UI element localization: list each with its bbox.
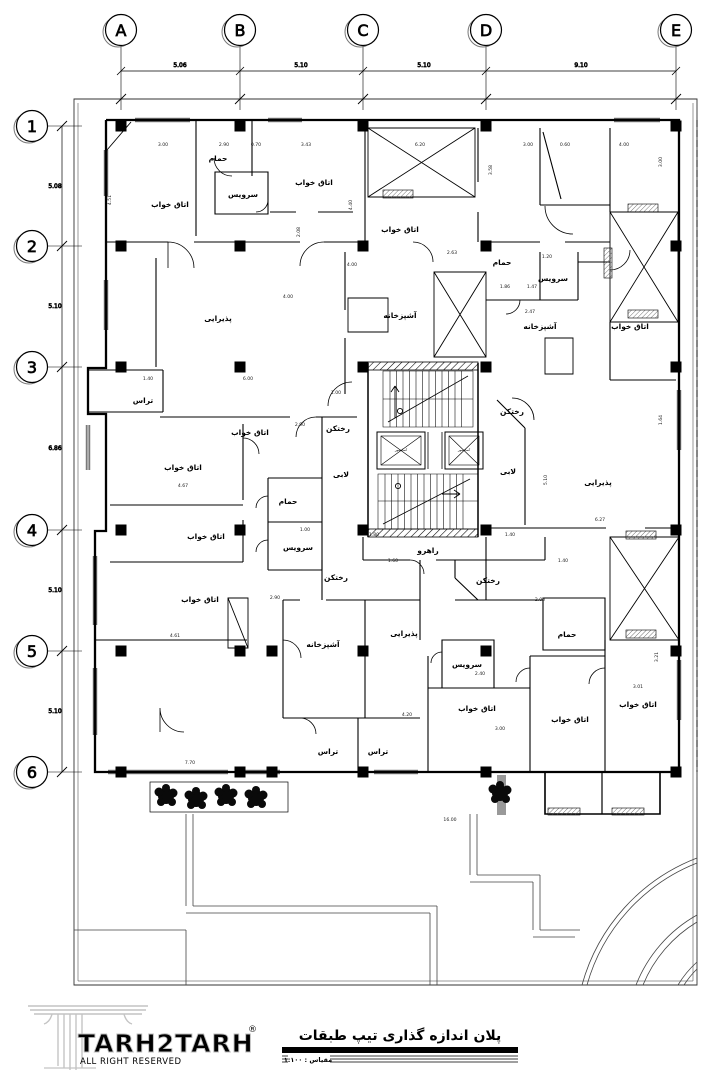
- core-hatched-wall-top: [368, 362, 478, 370]
- room-label: سرویس: [538, 274, 568, 283]
- column: [116, 646, 127, 657]
- room-label: اتاق خواب: [619, 700, 657, 709]
- column: [481, 646, 492, 657]
- grid-dim-label: 5.10: [294, 62, 308, 69]
- title-underline-bar: [282, 1047, 518, 1053]
- tree-icon: [155, 784, 178, 806]
- elevator-label: آسانسور: [394, 448, 408, 452]
- dim-label: 1.64: [658, 415, 664, 425]
- grid-bubble-col-B: B: [222, 15, 256, 48]
- dim-label: 3.00: [495, 726, 505, 732]
- dim-label: 2.90: [219, 142, 229, 148]
- grid-row-label: 1: [27, 117, 37, 136]
- column: [235, 646, 246, 657]
- room-label: رختکن: [500, 407, 524, 416]
- dim-label: 1.80: [369, 532, 379, 538]
- column: [481, 121, 492, 132]
- column: [116, 362, 127, 373]
- room-label: رختکن: [326, 424, 350, 433]
- core-hatched-wall-bottom: [368, 529, 478, 537]
- column: [671, 767, 682, 778]
- dim-label: 4.00: [619, 142, 629, 148]
- grid-row-label: 2: [27, 237, 37, 256]
- column: [235, 241, 246, 252]
- drawing-sheet: ABCDE1234565.065.105.109.105.085.106.865…: [0, 0, 720, 1080]
- room-label: اتاق خواب: [151, 200, 189, 209]
- dim-label: 2.00: [535, 597, 545, 603]
- tree-icon: [245, 786, 268, 808]
- room-label: تراس: [133, 396, 154, 405]
- column: [358, 646, 369, 657]
- grid-bubble-col-C: C: [345, 15, 379, 48]
- column: [358, 121, 369, 132]
- dim-label: 5.10: [543, 475, 549, 485]
- column: [481, 241, 492, 252]
- dim-label: 4.00: [347, 262, 357, 268]
- column: [671, 646, 682, 657]
- dim-label: 2.08: [296, 227, 302, 237]
- column: [116, 525, 127, 536]
- room-label: حمام: [279, 497, 298, 506]
- dim-label: 3.58: [488, 165, 494, 175]
- tree-icon: [489, 781, 512, 803]
- room-label: آشپزخانه: [383, 310, 417, 320]
- column: [481, 525, 492, 536]
- dim-label: 16.00: [443, 817, 456, 823]
- column: [671, 362, 682, 373]
- dim-label: 3.43: [301, 142, 311, 148]
- dim-label: 4.40: [348, 200, 354, 210]
- column: [671, 525, 682, 536]
- grid-dim-label: 5.10: [48, 708, 62, 715]
- room-label: اتاق خواب: [458, 704, 496, 713]
- grid-bubble-col-D: D: [468, 15, 502, 48]
- dim-label: 3.01: [633, 684, 643, 690]
- dim-label: 3.00: [523, 142, 533, 148]
- room-label: سرویس: [452, 660, 482, 669]
- dim-label: 1.60: [388, 558, 398, 564]
- grid-dim-label: 6.86: [48, 445, 62, 452]
- grid-bubble-row-1: 1: [14, 111, 48, 144]
- dim-label: 1.40: [143, 376, 153, 382]
- dim-label: 4.61: [170, 633, 180, 639]
- room-label: تراس: [318, 747, 339, 756]
- grid-dim-label: 5.08: [48, 183, 62, 190]
- elevator-labels: آسانسورآسانسور: [394, 448, 471, 452]
- column: [481, 767, 492, 778]
- grid-col-label: E: [671, 21, 681, 40]
- column: [358, 241, 369, 252]
- column: [481, 362, 492, 373]
- room-label: اتاق خواب: [295, 178, 333, 187]
- dim-label: 2.63: [447, 250, 457, 256]
- grid-row-label: 4: [27, 521, 37, 540]
- grid-dim-label: 5.10: [48, 587, 62, 594]
- grid-row-label: 3: [27, 358, 37, 377]
- grid-bubble-row-4: 4: [14, 515, 48, 548]
- room-label: آشپزخانه: [306, 639, 340, 649]
- grid-dim-label: 5.10: [48, 303, 62, 310]
- grid-col-label: C: [357, 21, 368, 40]
- column: [235, 362, 246, 373]
- dim-label: 2.40: [475, 671, 485, 677]
- title-block: TARH2TARH ® ALL RIGHT RESERVED پلان اندا…: [28, 1006, 518, 1070]
- sheet-title: پلان اندازه گذاری تیپ طبقات: [299, 1027, 502, 1044]
- dim-label: 0.70: [251, 142, 261, 148]
- column: [358, 767, 369, 778]
- column: [235, 767, 246, 778]
- dim-label: 4.20: [402, 712, 412, 718]
- dim-label: 6.27: [595, 517, 605, 523]
- dim-label: 1.86: [500, 284, 510, 290]
- grid-dim-label: 9.10: [574, 62, 588, 69]
- dim-label: 0.60: [560, 142, 570, 148]
- logo-text: TARH2TARH: [78, 1029, 254, 1058]
- room-label: رختکن: [476, 576, 500, 585]
- column: [358, 525, 369, 536]
- column: [358, 362, 369, 373]
- tree-icon: [215, 784, 238, 806]
- dim-label: 3.00: [658, 157, 664, 167]
- dim-label: 4.67: [178, 483, 188, 489]
- grid-bubble-col-E: E: [658, 15, 692, 48]
- dim-label: 6.00: [243, 376, 253, 382]
- dim-label: 7.70: [185, 760, 195, 766]
- room-label: حمام: [558, 630, 577, 639]
- driveway-arcs: [582, 858, 697, 985]
- grid-col-label: A: [116, 21, 127, 40]
- room-label: لابی: [500, 467, 516, 476]
- room-label: حمام: [209, 154, 228, 163]
- stair-upper: [383, 371, 473, 427]
- room-label: پذیرایی: [204, 314, 232, 323]
- dim-label: 4.51: [107, 195, 113, 205]
- grid-dim-label: 5.10: [417, 62, 431, 69]
- room-label: راهرو: [416, 546, 438, 555]
- dim-label: 3.00: [158, 142, 168, 148]
- column: [116, 241, 127, 252]
- room-label: لابی: [333, 470, 349, 479]
- dim-label: 4.00: [283, 294, 293, 300]
- room-label: اتاق خواب: [187, 532, 225, 541]
- tree-icon: [185, 787, 208, 809]
- stair-lower: [378, 474, 478, 529]
- grid-bubble-row-6: 6: [14, 757, 48, 790]
- column: [116, 121, 127, 132]
- logo-subtext: ALL RIGHT RESERVED: [80, 1057, 182, 1067]
- room-label: اتاق خواب: [181, 595, 219, 604]
- room-label: اتاق خواب: [231, 428, 269, 437]
- dim-label: 1.20: [542, 254, 552, 260]
- dim-label: 3.21: [654, 652, 660, 662]
- interior-walls: [88, 120, 676, 772]
- room-label: اتاق خواب: [551, 715, 589, 724]
- dim-label: 1.40: [505, 532, 515, 538]
- room-label: سرویس: [283, 543, 313, 552]
- trees: [155, 781, 512, 809]
- grid-bubble-row-3: 3: [14, 352, 48, 385]
- floor-plan-canvas: ABCDE1234565.065.105.109.105.085.106.865…: [0, 0, 720, 1080]
- room-label: سرویس: [228, 190, 258, 199]
- yard-paths: [74, 814, 580, 985]
- column: [671, 241, 682, 252]
- dim-label: 2.90: [270, 595, 280, 601]
- column: [116, 767, 127, 778]
- grid-col-label: D: [480, 21, 492, 40]
- room-label: رختکن: [324, 573, 348, 582]
- room-label: اتاق خواب: [164, 463, 202, 472]
- grid-row-label: 6: [27, 763, 37, 782]
- column: [235, 121, 246, 132]
- room-label: پذیرایی: [390, 629, 418, 638]
- logo: TARH2TARH ® ALL RIGHT RESERVED: [28, 1006, 257, 1070]
- column: [267, 646, 278, 657]
- column: [235, 525, 246, 536]
- grid-dim-label: 5.06: [173, 62, 187, 69]
- room-label: حمام: [493, 258, 512, 267]
- grid-col-label: B: [235, 21, 246, 40]
- dim-label: 1.00: [331, 390, 341, 396]
- scale-text: مقیاس : ۱:۱۰۰: [284, 1056, 332, 1064]
- grid-bubble-col-A: A: [103, 15, 137, 48]
- room-label: اتاق خواب: [611, 322, 649, 331]
- dim-label: 1.40: [558, 558, 568, 564]
- dim-label: 1.47: [527, 284, 537, 290]
- dim-label: 2.47: [525, 309, 535, 315]
- logo-reg-mark: ®: [248, 1025, 257, 1035]
- room-label: آشپزخانه: [523, 321, 557, 331]
- column: [267, 767, 278, 778]
- dim-label: 6.20: [415, 142, 425, 148]
- column: [671, 121, 682, 132]
- grid-bubble-row-2: 2: [14, 231, 48, 264]
- room-label: پذیرایی: [584, 478, 612, 487]
- elevator-label: آسانسور: [457, 448, 471, 452]
- planters: [150, 775, 512, 815]
- grid-bubble-row-5: 5: [14, 636, 48, 669]
- grid-row-label: 5: [27, 642, 37, 661]
- dim-label: 1.00: [300, 527, 310, 533]
- dim-label: 2.90: [295, 422, 305, 428]
- room-label: اتاق خواب: [381, 225, 419, 234]
- room-label: تراس: [368, 747, 389, 756]
